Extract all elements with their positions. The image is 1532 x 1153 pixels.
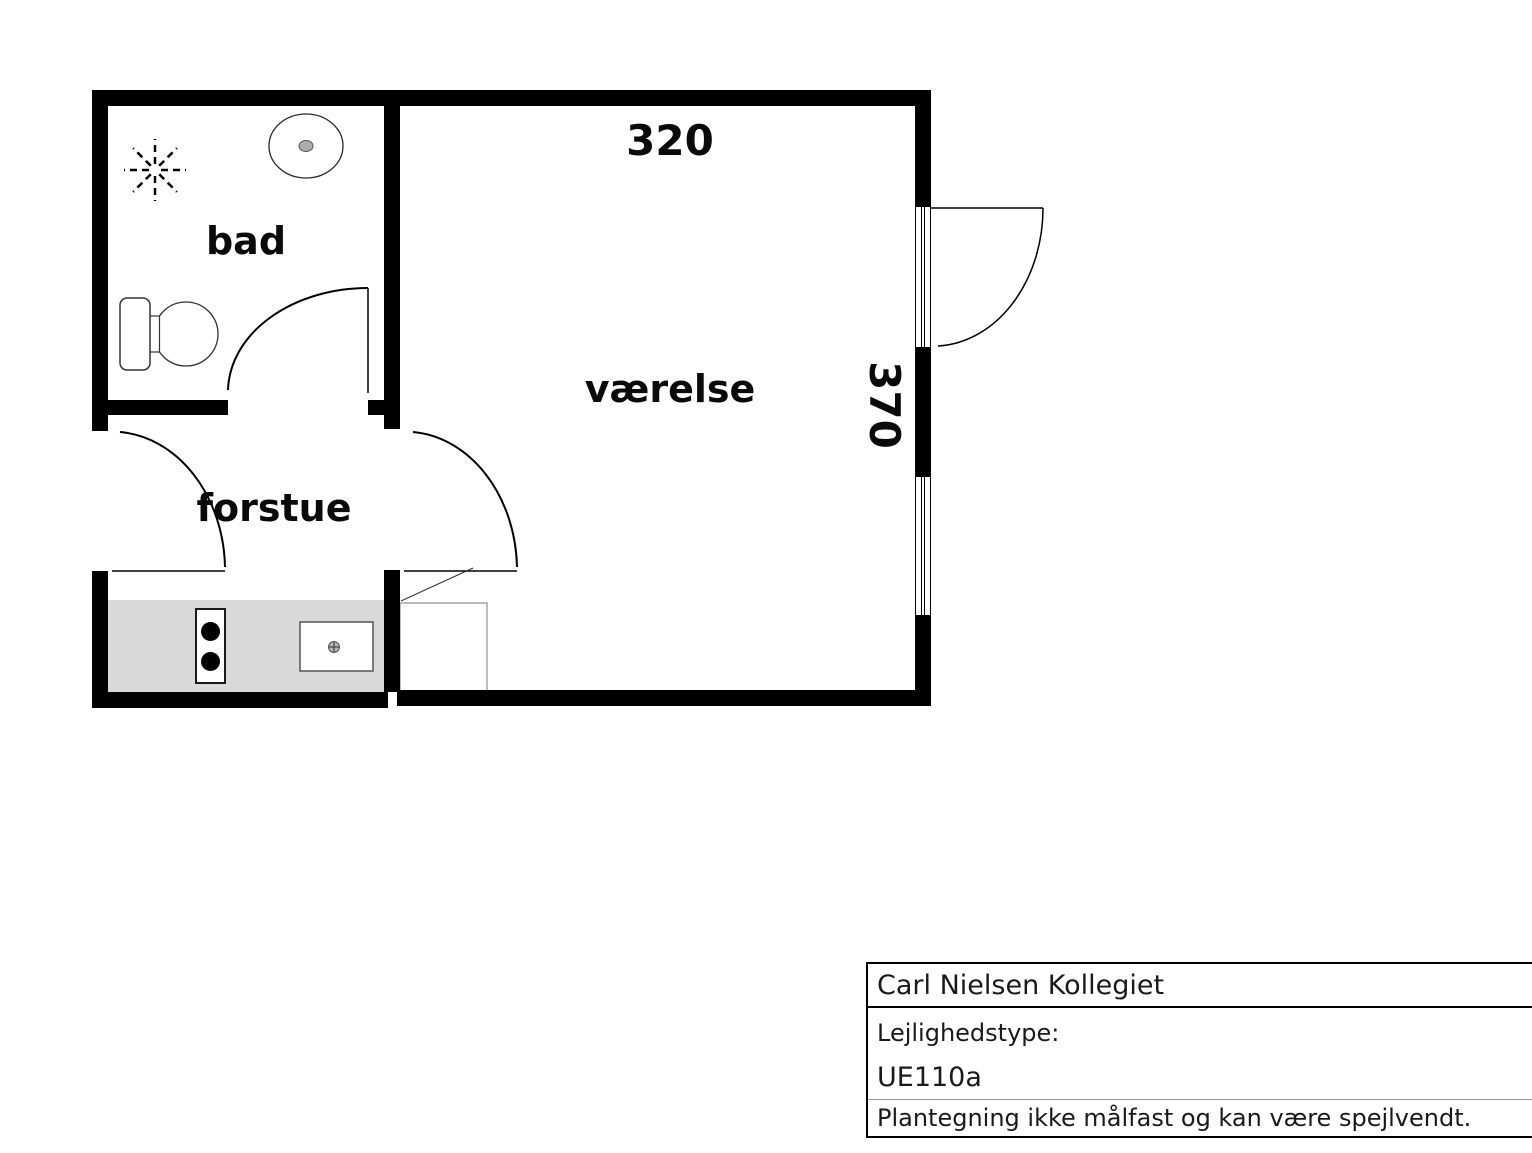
wall-left-upper — [92, 90, 108, 431]
room-label-bad: bad — [206, 222, 286, 260]
title-block-building-row: Carl Nielsen Kollegiet — [868, 964, 1532, 1008]
building-name: Carl Nielsen Kollegiet — [877, 970, 1164, 1001]
wall-left-lower — [92, 571, 108, 708]
wall-right-mid — [915, 348, 931, 476]
kitchen-sink-icon — [300, 622, 373, 671]
apartment-type-value: UE110a — [877, 1062, 1532, 1093]
room-label-vaerelse: værelse — [585, 370, 756, 408]
dimension-width: 320 — [626, 120, 714, 162]
vaerelse-door — [404, 432, 517, 571]
floorplan-page: bad forstue værelse 320 370 Carl Nielsen… — [0, 0, 1532, 1153]
balcony-door-glazing — [916, 207, 931, 348]
room-label-forstue: forstue — [197, 489, 352, 527]
disclaimer-text: Plantegning ikke målfast og kan være spe… — [877, 1104, 1471, 1132]
wall-forstue-vaerelse-lower — [384, 570, 400, 692]
dimension-height: 370 — [863, 361, 905, 449]
window — [916, 477, 931, 616]
wall-right-bottom — [915, 616, 931, 706]
apartment-type-label: Lejlighedstype: — [877, 1019, 1532, 1047]
washbasin-icon — [269, 114, 343, 178]
stove-icon — [196, 609, 225, 683]
wall-bad-bottom-left — [92, 400, 228, 415]
wall-bad-bottom-right — [368, 400, 384, 415]
bathroom-door — [228, 288, 368, 393]
wall-bottom-kitchen — [92, 692, 388, 708]
wall-right-top — [915, 90, 931, 206]
shower-icon — [124, 139, 186, 201]
wall-bottom-vaerelse — [397, 690, 931, 706]
wall-bad-vaerelse — [384, 90, 400, 429]
title-block-type-row: Lejlighedstype: UE110a — [868, 1008, 1532, 1100]
title-block: Carl Nielsen Kollegiet Lejlighedstype: U… — [866, 962, 1532, 1138]
toilet-icon — [120, 298, 218, 370]
cabinet-door-line — [401, 568, 473, 601]
wall-top — [92, 90, 931, 106]
title-block-disclaimer-row: Plantegning ikke målfast og kan være spe… — [868, 1100, 1532, 1135]
balcony-door-swing — [931, 208, 1043, 346]
cabinet — [400, 603, 487, 692]
